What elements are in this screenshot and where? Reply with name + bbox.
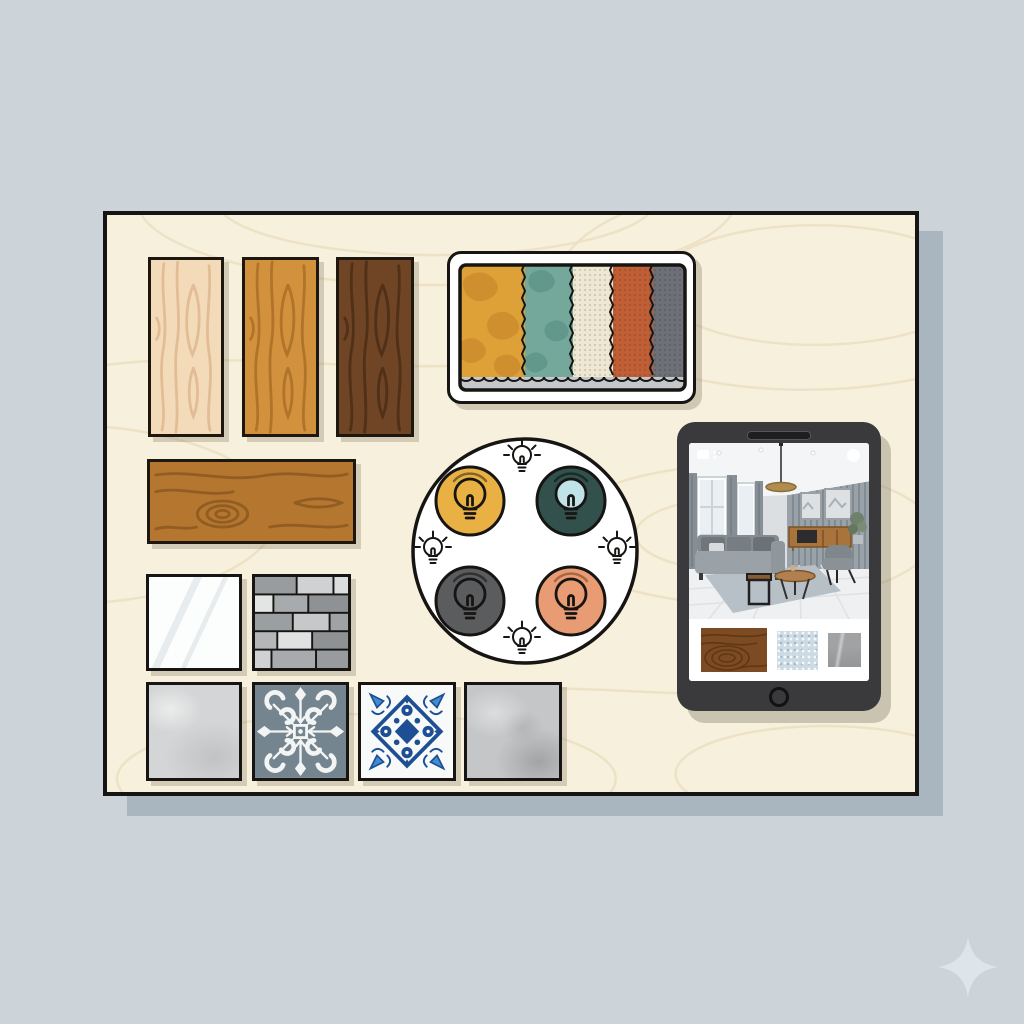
mood-board (103, 211, 919, 796)
lighting-palette-disc (408, 434, 642, 668)
tile-mirror (146, 574, 242, 671)
tablet-speaker-slot (747, 431, 811, 440)
shutter-icon (847, 449, 860, 462)
tablet-screen (689, 443, 869, 681)
light-option-charcoal (436, 567, 504, 635)
thumbnail-speckled-fabric (777, 631, 818, 670)
wood-sample-caramel-board (147, 459, 356, 544)
room-photo (689, 443, 869, 619)
tablet-device (677, 422, 881, 711)
fabric-swatch-card (447, 251, 696, 404)
tile-gray-ornament (252, 682, 349, 781)
sparkle-watermark-icon (936, 935, 1000, 999)
tile-light-concrete (146, 682, 242, 781)
wood-sample-golden-oak (242, 257, 319, 437)
home-button (769, 687, 789, 707)
menu-dots-icon (713, 451, 716, 454)
thumbnail-walnut-texture (701, 628, 767, 672)
illustration-canvas (0, 0, 1024, 1024)
tile-gray-brick-mosaic (252, 574, 351, 671)
app-icon (697, 450, 709, 459)
thumbnail-gray-stone (828, 633, 861, 667)
wood-sample-light-pine (148, 257, 224, 437)
light-option-warm-yellow (436, 467, 504, 535)
tile-warm-concrete (464, 682, 562, 781)
tile-blue-majolica (358, 682, 456, 781)
wood-sample-dark-walnut (336, 257, 414, 437)
light-option-deep-teal (537, 467, 605, 535)
light-option-coral (537, 567, 605, 635)
material-thumbnail-strip (689, 619, 869, 681)
